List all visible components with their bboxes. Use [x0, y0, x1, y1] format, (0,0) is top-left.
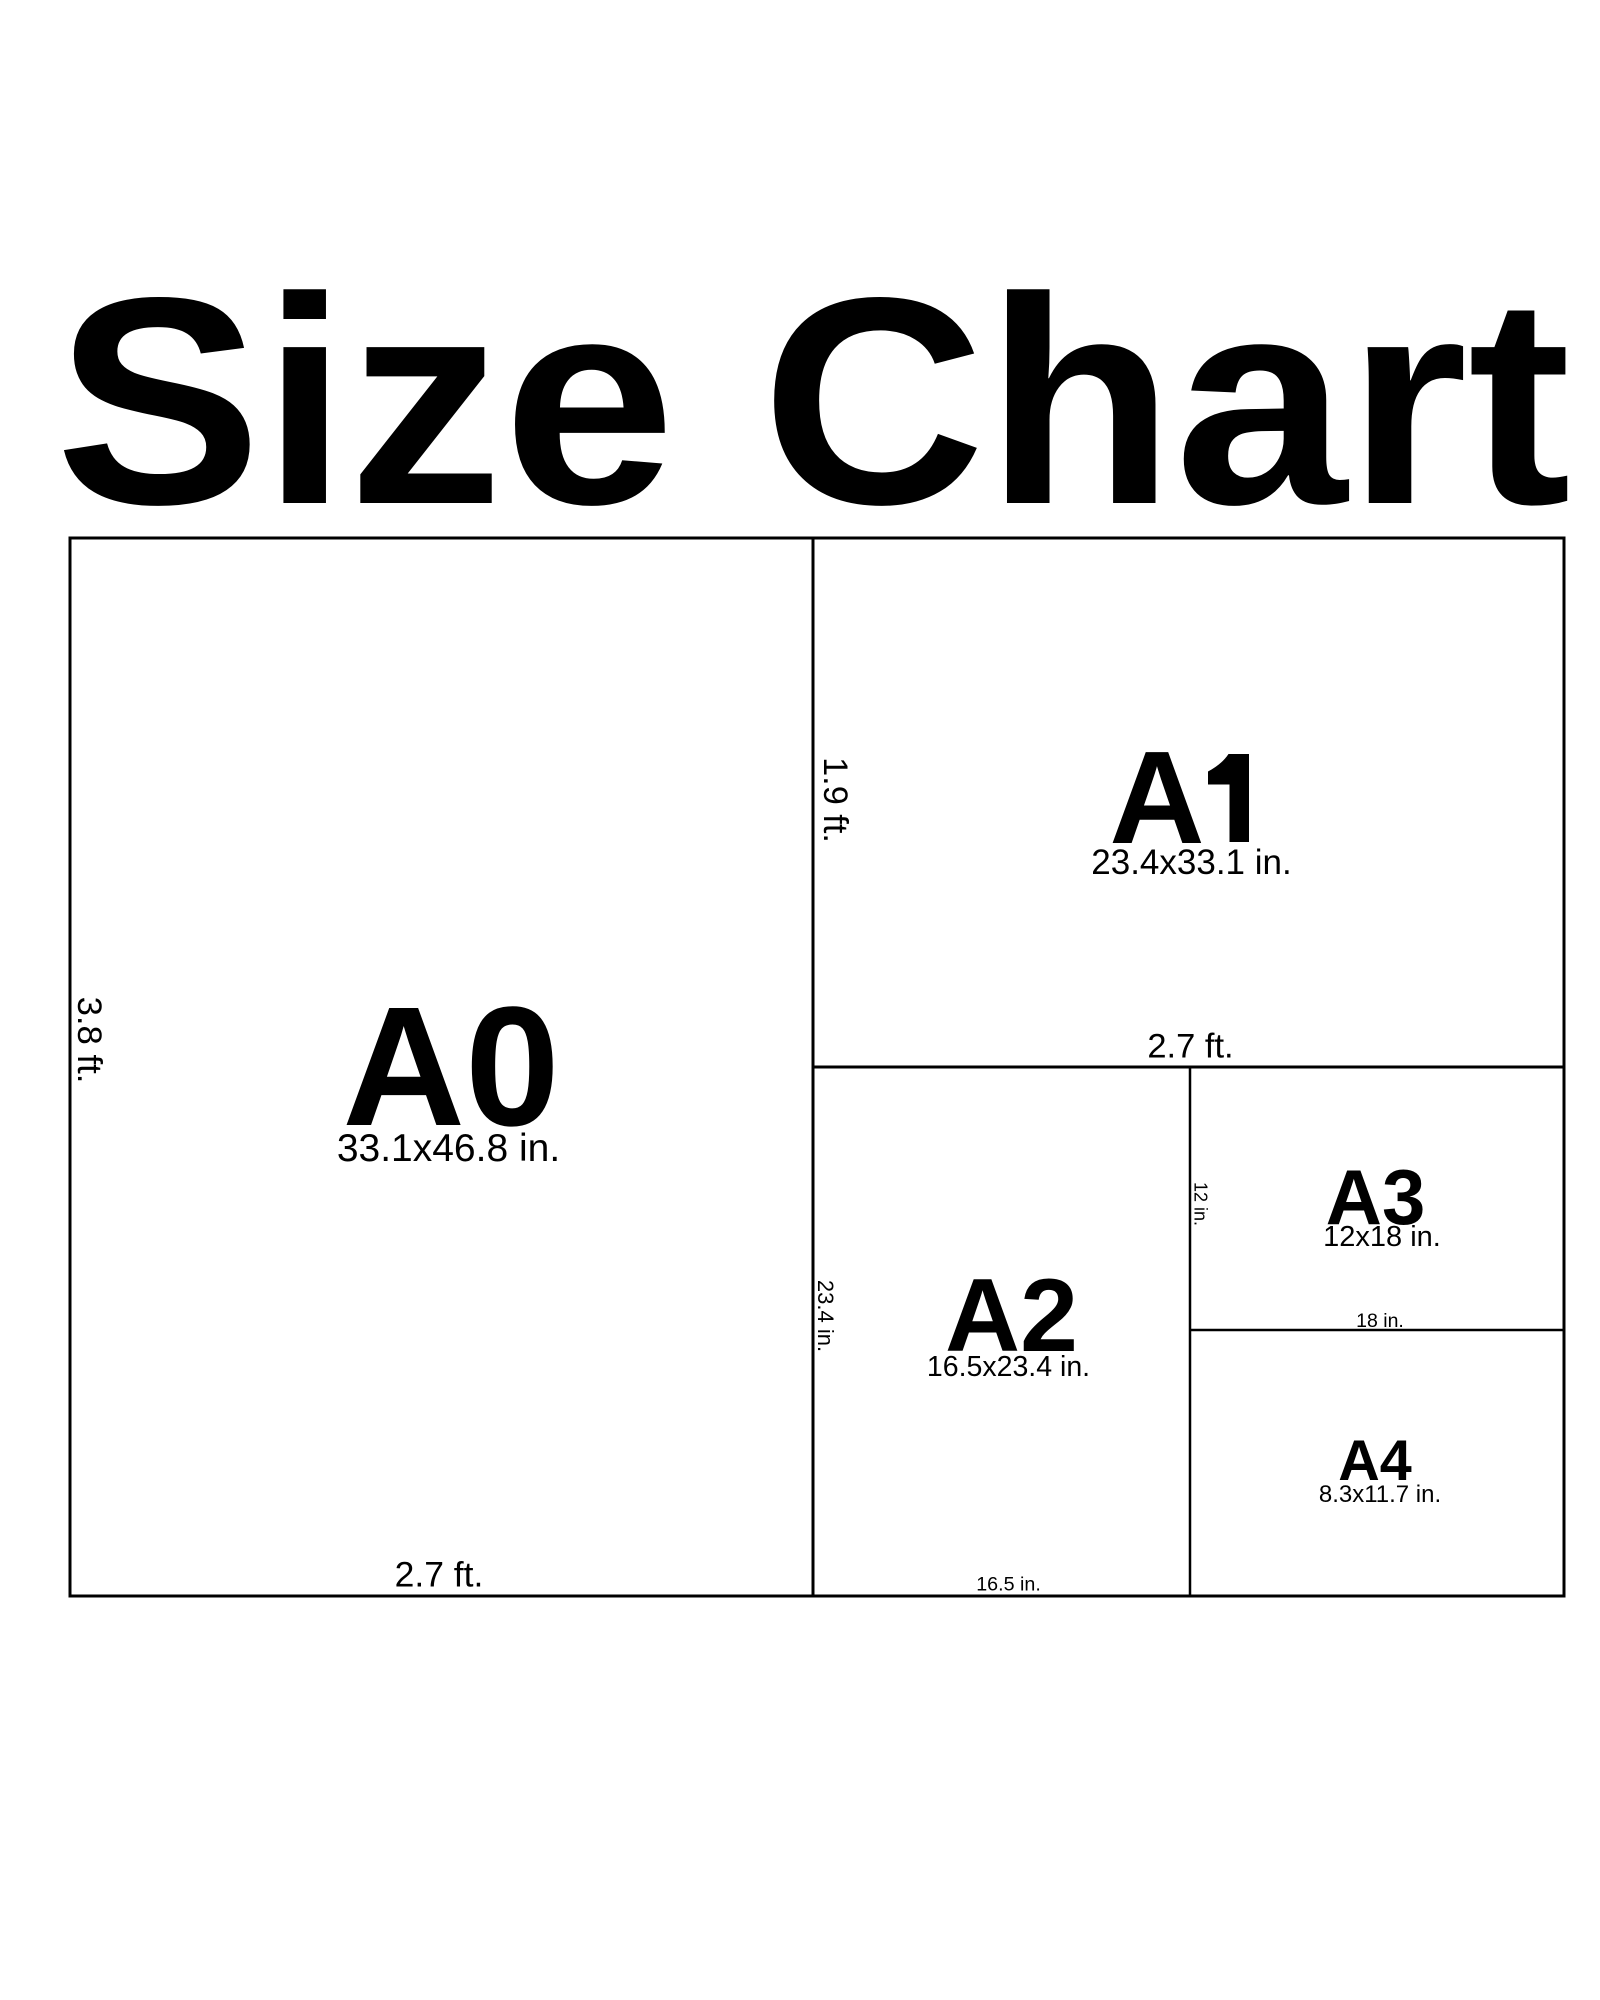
svg-text:16.5x23.4 in.: 16.5x23.4 in.: [927, 1351, 1090, 1383]
svg-text:23.4 in.: 23.4 in.: [813, 1280, 838, 1352]
svg-text:12 in.: 12 in.: [1191, 1182, 1211, 1226]
svg-text:3.8 ft.: 3.8 ft.: [70, 997, 108, 1084]
svg-text:1.9 ft.: 1.9 ft.: [816, 757, 854, 843]
svg-text:18 in.: 18 in.: [1356, 1310, 1404, 1332]
svg-text:12x18 in.: 12x18 in.: [1323, 1221, 1441, 1253]
svg-text:8.3x11.7 in.: 8.3x11.7 in.: [1319, 1481, 1441, 1508]
svg-text:16.5 in.: 16.5 in.: [976, 1574, 1041, 1596]
svg-text:33.1x46.8 in.: 33.1x46.8 in.: [337, 1127, 560, 1170]
svg-text:2.7 ft.: 2.7 ft.: [395, 1555, 484, 1595]
svg-text:2.7 ft.: 2.7 ft.: [1147, 1028, 1233, 1066]
svg-text:23.4x33.1 in.: 23.4x33.1 in.: [1091, 843, 1291, 882]
svg-text:Size Chart: Size Chart: [55, 236, 1571, 566]
